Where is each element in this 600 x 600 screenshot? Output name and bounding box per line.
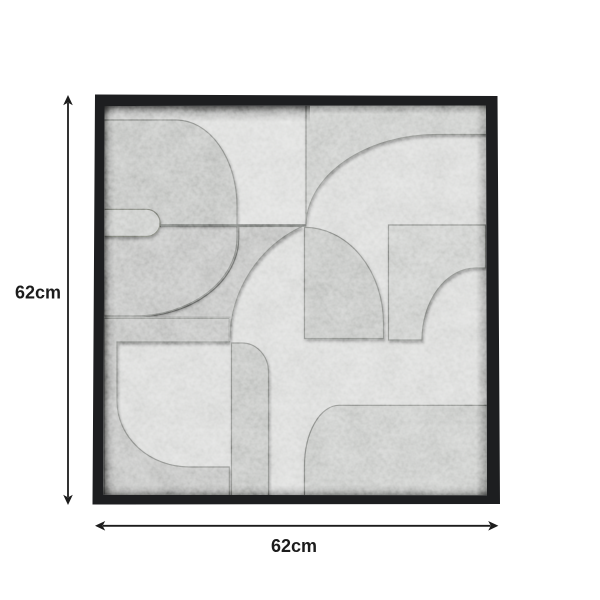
svg-text:62cm: 62cm [15, 283, 61, 303]
svg-text:62cm: 62cm [271, 536, 317, 556]
